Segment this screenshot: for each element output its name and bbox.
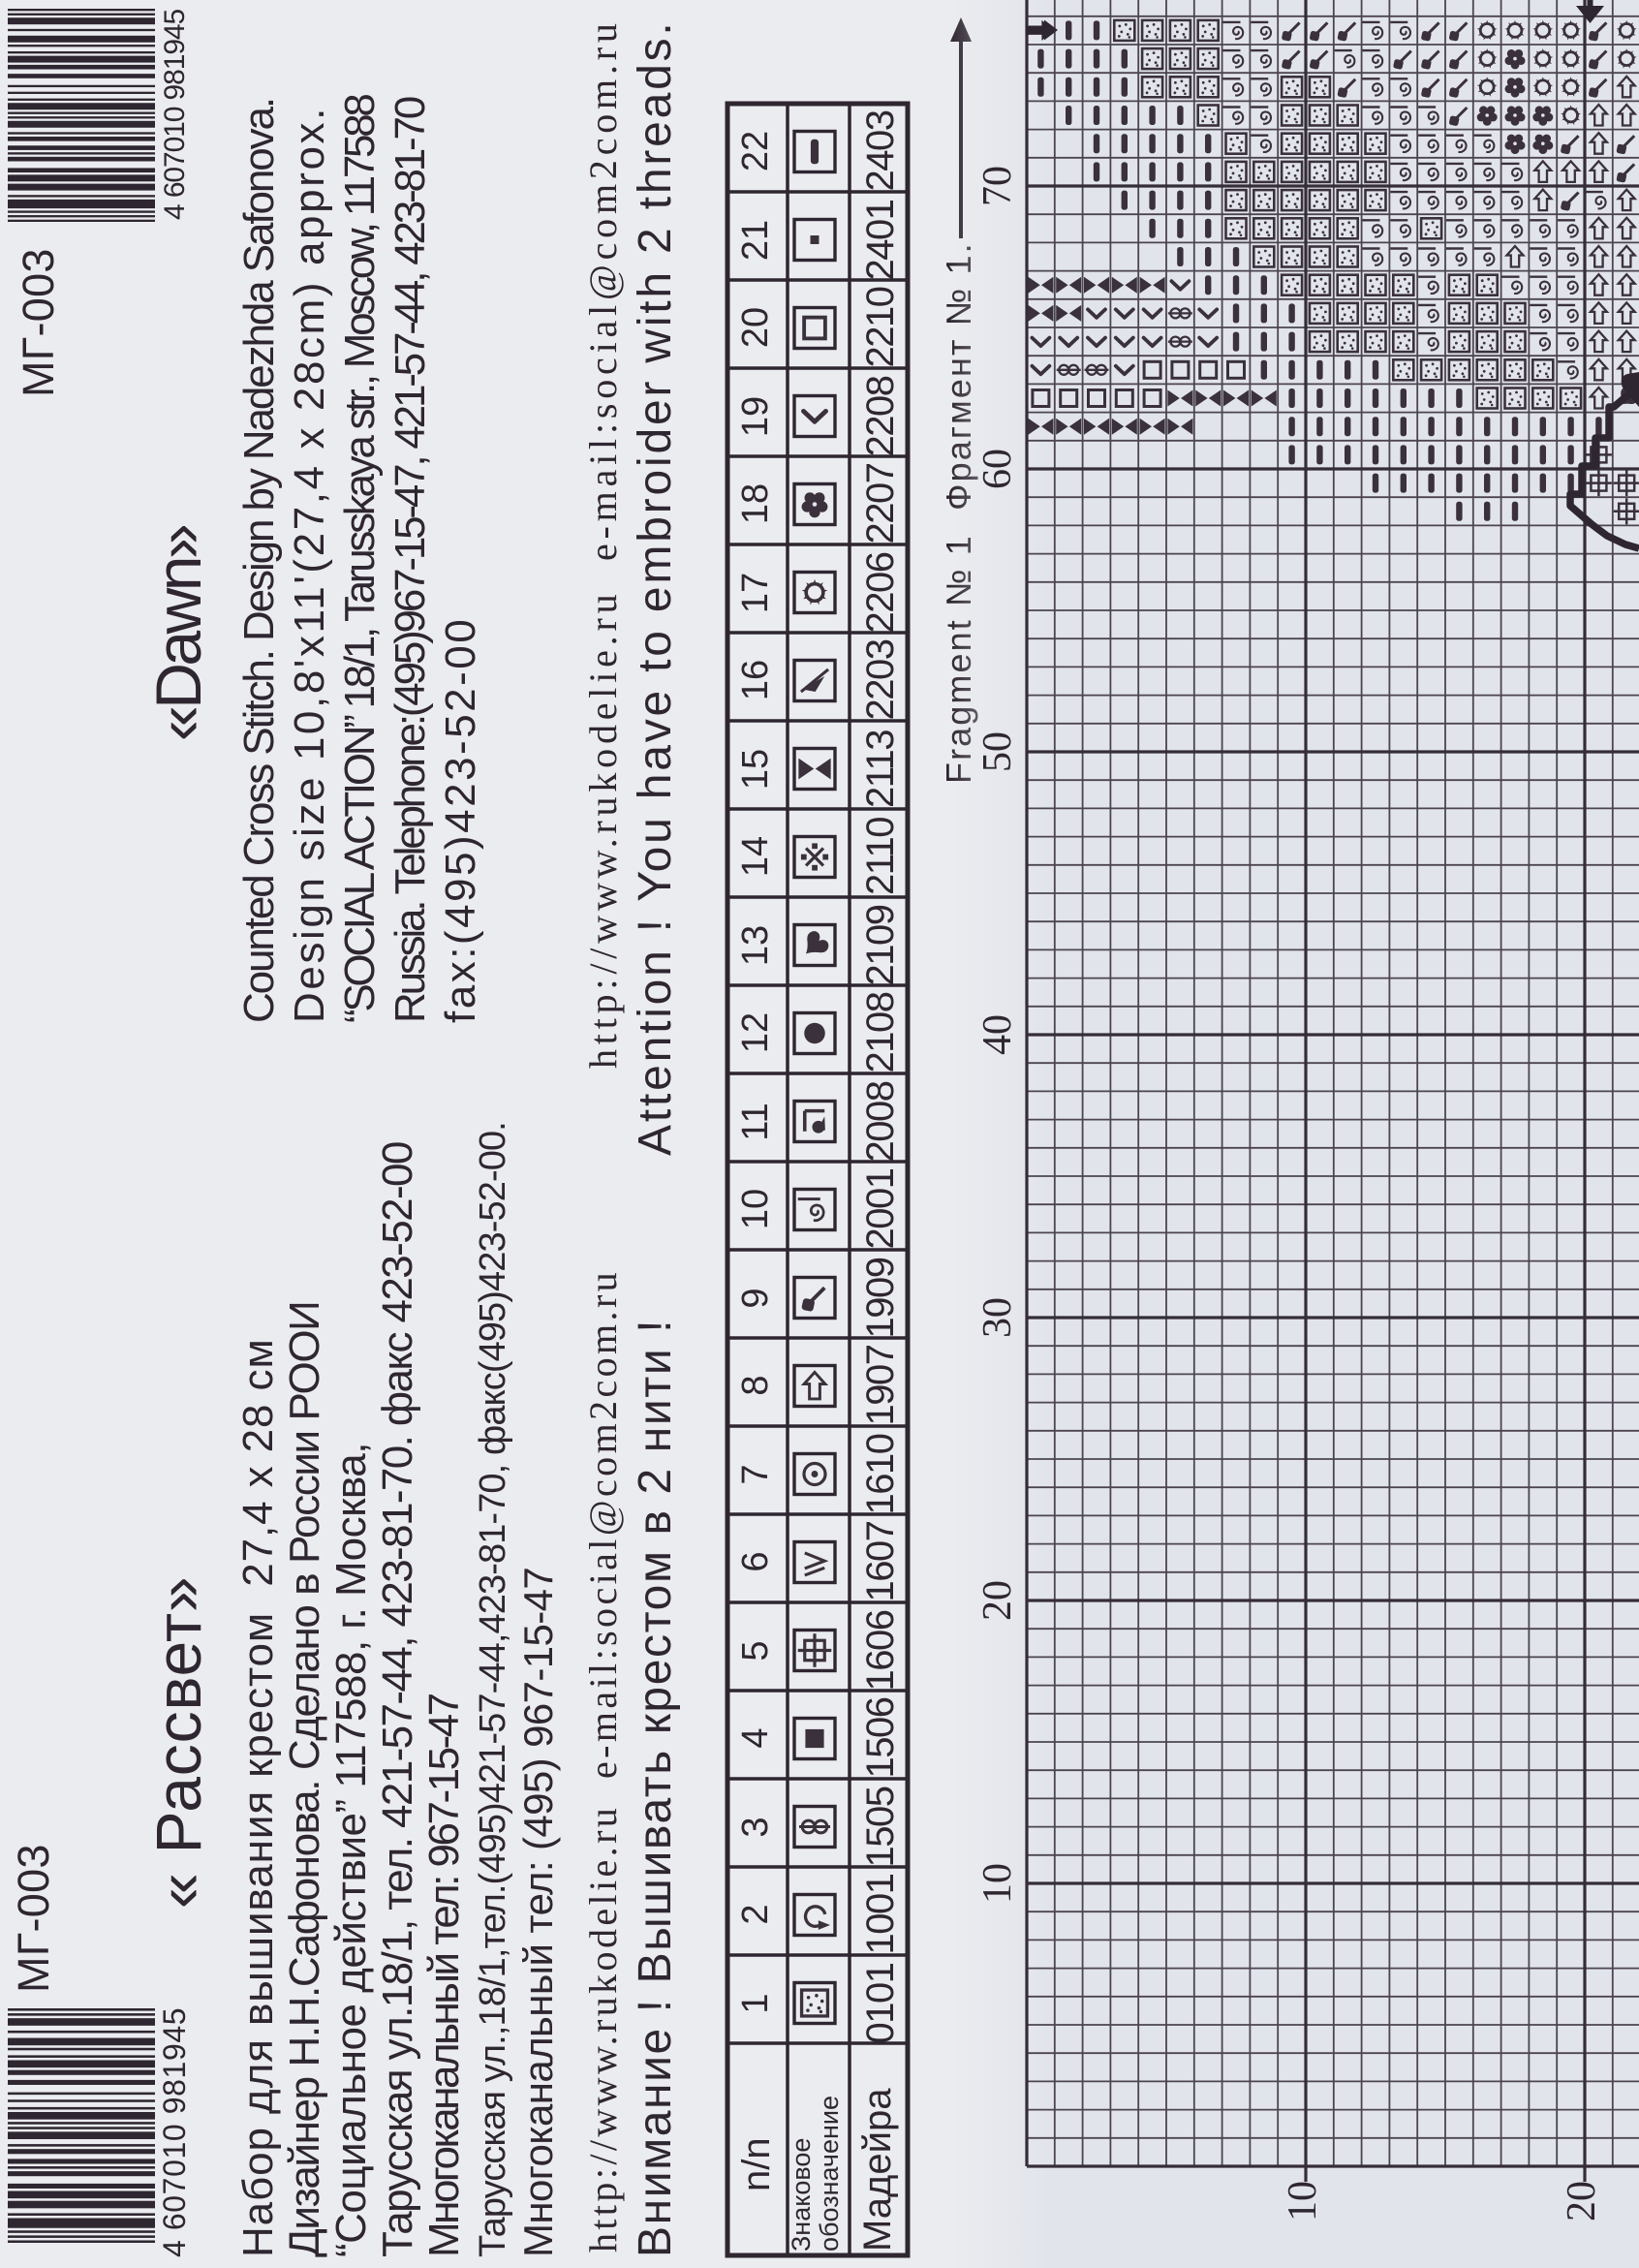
svg-text:60: 60 bbox=[975, 449, 1020, 489]
svg-text:70: 70 bbox=[975, 166, 1020, 206]
svg-text:30: 30 bbox=[975, 1297, 1020, 1338]
svg-text:10: 10 bbox=[1281, 2181, 1325, 2221]
svg-text:40: 40 bbox=[975, 1014, 1020, 1055]
svg-text:10: 10 bbox=[975, 1863, 1020, 1904]
svg-text:20: 20 bbox=[975, 1580, 1020, 1621]
svg-text:20: 20 bbox=[1560, 2181, 1604, 2221]
svg-text:50: 50 bbox=[975, 731, 1020, 772]
